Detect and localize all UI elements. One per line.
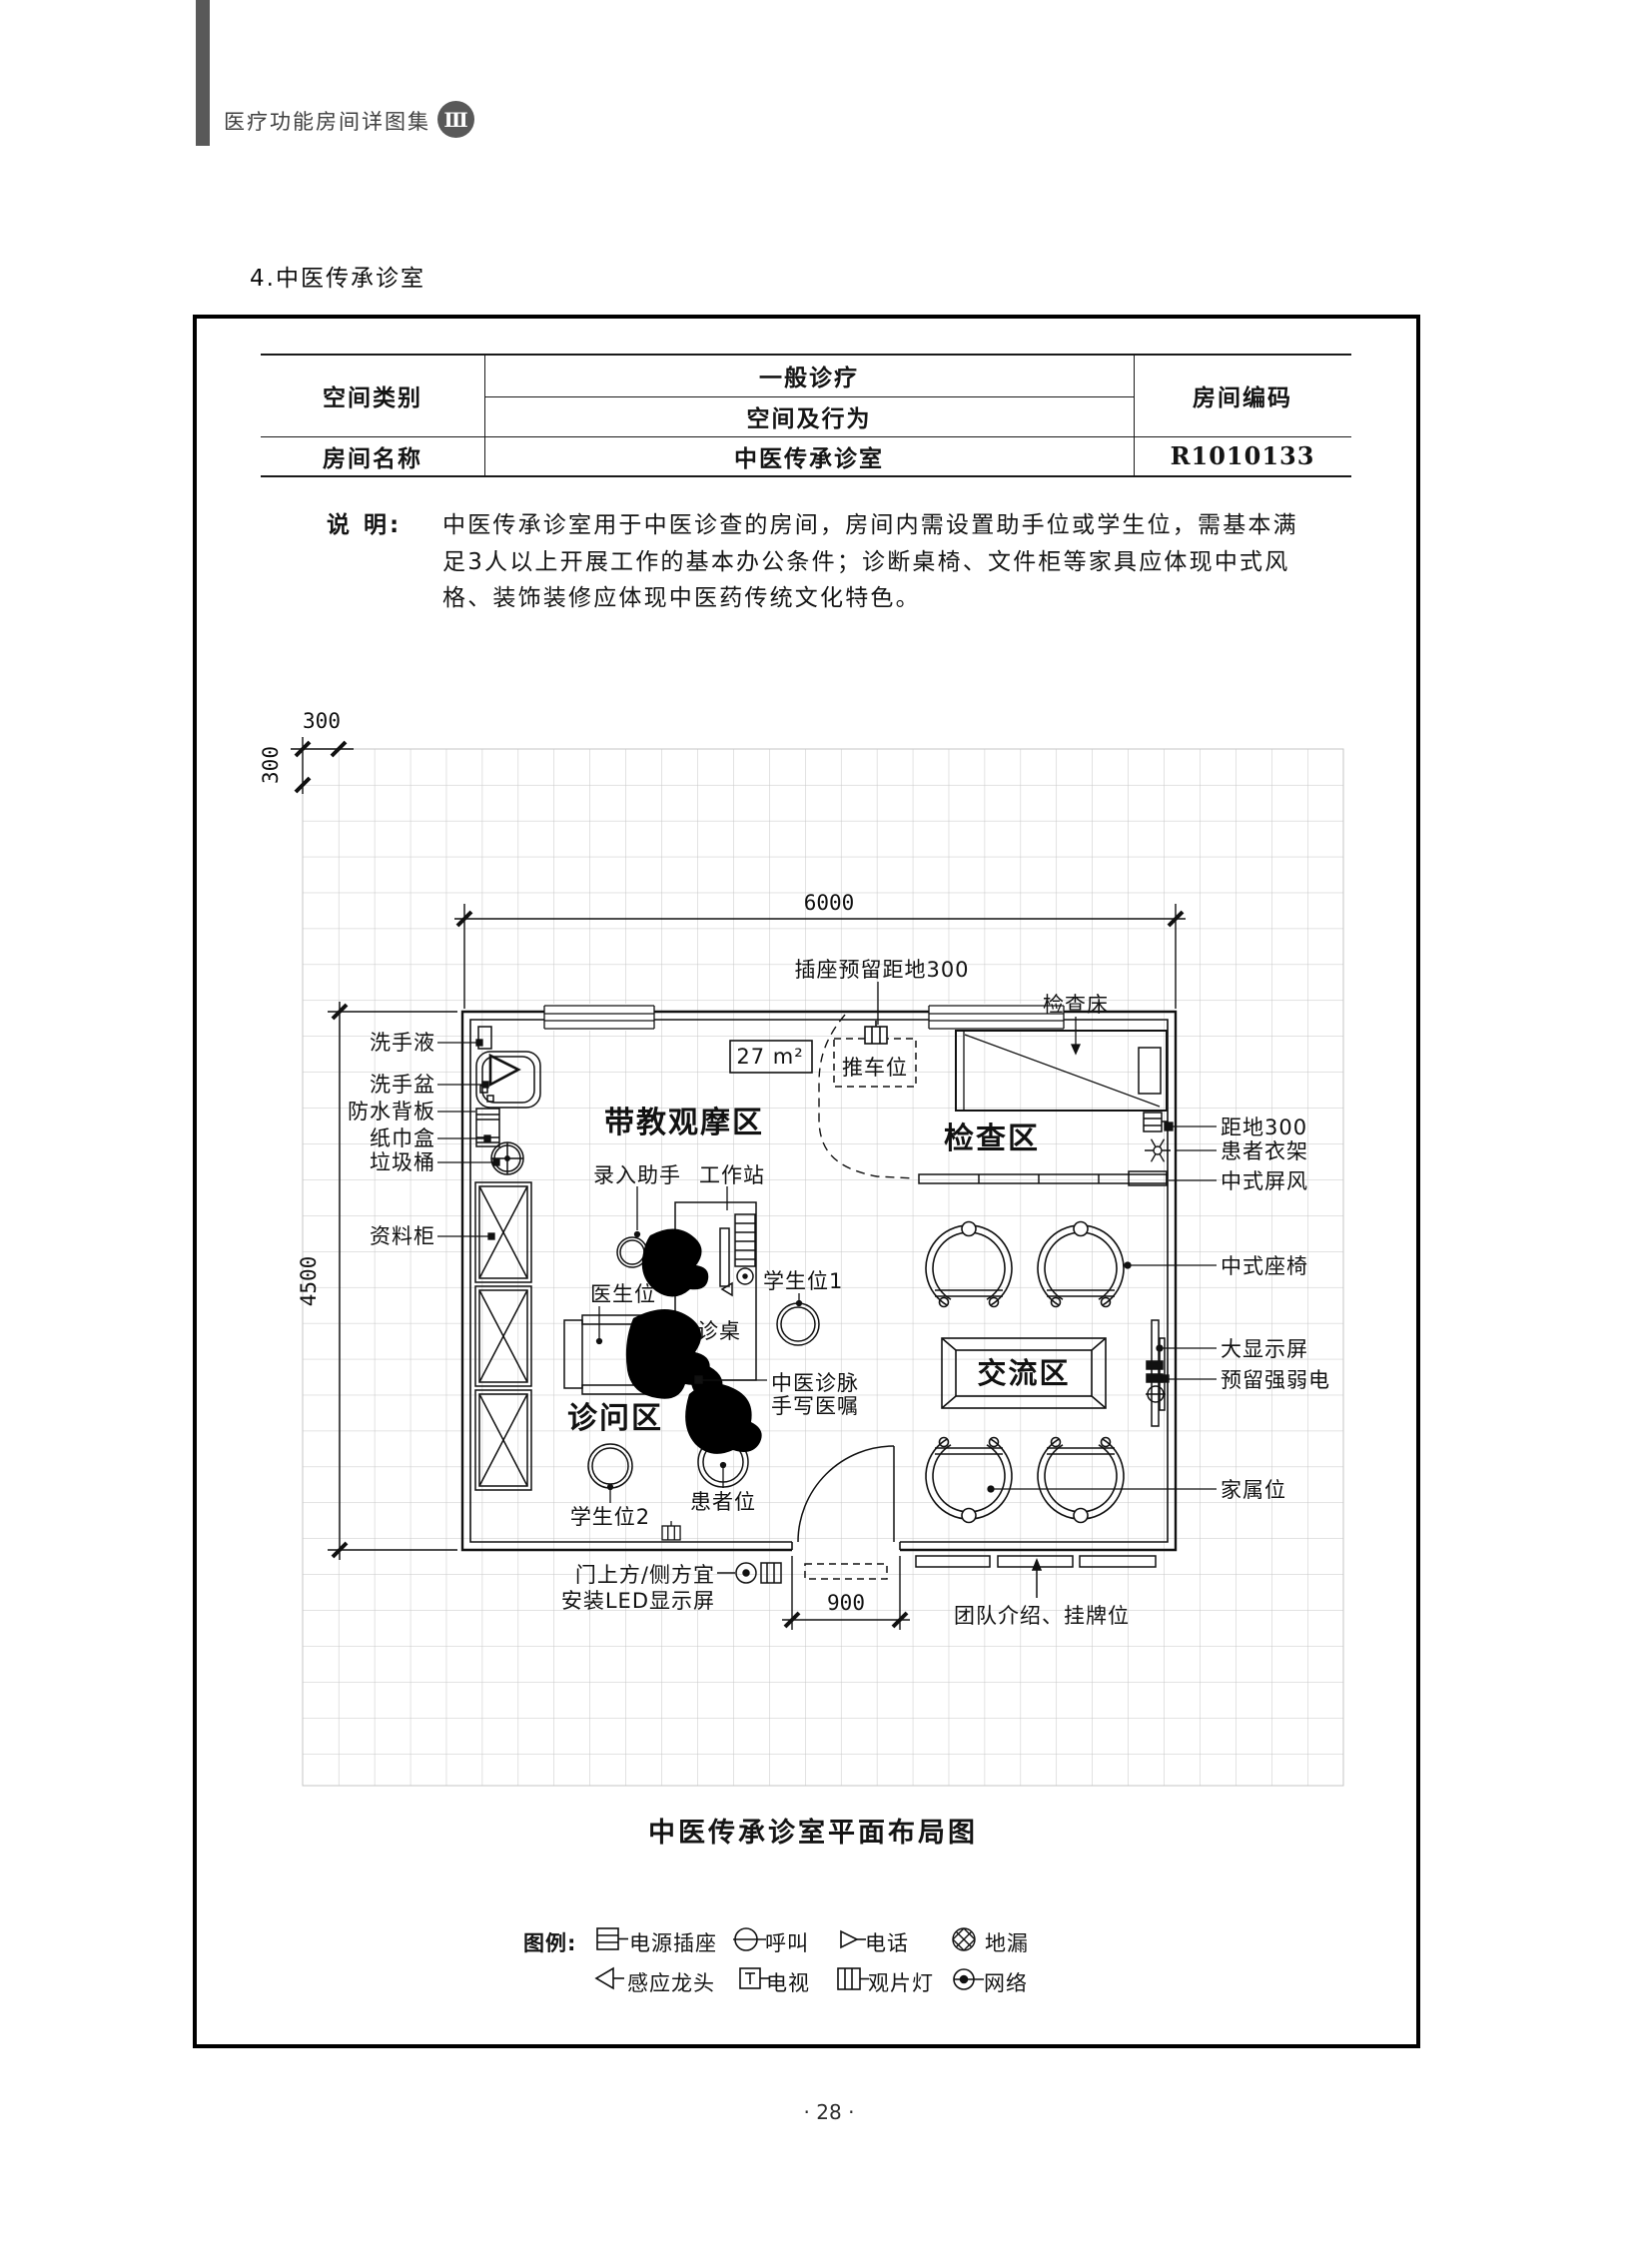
consult-desk-label: 诊桌 (697, 1319, 741, 1343)
patient-seat-label: 患者位 (690, 1490, 756, 1514)
family-seat-label: 家属位 (1221, 1478, 1286, 1502)
hand-soap-label: 洗手液 (370, 1031, 435, 1055)
legend-label: 电视 (766, 1967, 810, 1997)
legend-label: 观片灯 (868, 1967, 934, 1997)
network-icon (951, 1967, 985, 1991)
wash-basin-label: 洗手盆 (370, 1073, 435, 1097)
student-seat1-label: 学生位1 (763, 1269, 843, 1293)
phone-icon (839, 1929, 867, 1951)
coat-rack-label: 患者衣架 (1221, 1139, 1308, 1163)
dim-door-width: 900 (827, 1591, 865, 1615)
area-label: 27 m² (736, 1045, 803, 1069)
large-display-label: 大显示屏 (1221, 1337, 1308, 1361)
sensor-faucet-icon (593, 1966, 625, 1992)
atlas-page: 医疗功能房间详图集 Ⅲ 4.中医传承诊室 空间类别 一般诊疗 空间及行为 房间编… (0, 0, 1652, 2242)
workstation-label: 工作站 (699, 1163, 765, 1187)
chinese-chair-label: 中式座椅 (1221, 1254, 1308, 1278)
communication-zone-label: 交流区 (977, 1356, 1070, 1390)
consult-zone-label: 诊问区 (567, 1401, 663, 1436)
pulse-note-line2: 手写医嘱 (771, 1394, 859, 1418)
exam-bed-label: 检查床 (1043, 993, 1109, 1017)
team-intro-label: 团队介绍、挂牌位 (954, 1604, 1130, 1628)
socket-height-label: 插座预留距地300 (794, 958, 969, 982)
waterproof-board-label: 防水背板 (348, 1100, 435, 1123)
file-cabinet-label: 资料柜 (370, 1224, 435, 1248)
reserved-power-label: 预留强弱电 (1221, 1368, 1330, 1392)
led-label-line1: 门上方/侧方宜 (575, 1563, 715, 1587)
page-number: · 28 · (779, 2100, 879, 2124)
height300-label: 距地300 (1221, 1116, 1307, 1139)
student-seat2-label: 学生位2 (570, 1505, 650, 1529)
dim-module-h: 300 (303, 709, 341, 733)
legend-label: 网络 (984, 1967, 1028, 1997)
exam-zone-label: 检查区 (944, 1121, 1040, 1156)
call-icon (733, 1926, 767, 1952)
legend-label: 电源插座 (629, 1927, 717, 1957)
entry-assistant-label: 录入助手 (593, 1163, 681, 1187)
led-label-line2: 安装LED显示屏 (561, 1589, 715, 1613)
tissue-box-label: 纸巾盒 (370, 1126, 435, 1150)
legend-label: 地漏 (985, 1927, 1029, 1957)
teaching-zone-label: 带教观摩区 (604, 1106, 764, 1140)
trash-bin-label: 垃圾桶 (370, 1150, 435, 1174)
chinese-screen-label: 中式屏风 (1221, 1169, 1308, 1193)
power-socket-icon (595, 1926, 629, 1952)
dim-module-v: 300 (259, 746, 283, 784)
dim-room-depth: 4500 (297, 1256, 321, 1307)
cart-label: 推车位 (842, 1056, 908, 1080)
dim-room-width: 6000 (804, 891, 855, 915)
film-viewer-icon (836, 1966, 870, 1992)
plan-caption: 中医传承诊室平面布局图 (613, 1811, 1013, 1850)
legend-label: 感应龙头 (627, 1967, 715, 1997)
floor-plan: 300 300 6000 4500 (0, 0, 1652, 2242)
pulse-note-line1: 中医诊脉 (771, 1371, 859, 1395)
legend-label: 呼叫 (765, 1927, 809, 1957)
legend-label: 电话 (865, 1927, 909, 1957)
floor-drain-icon (951, 1926, 977, 1952)
legend-title: 图例: (523, 1927, 576, 1957)
doctor-seat-label: 医生位 (590, 1282, 656, 1306)
